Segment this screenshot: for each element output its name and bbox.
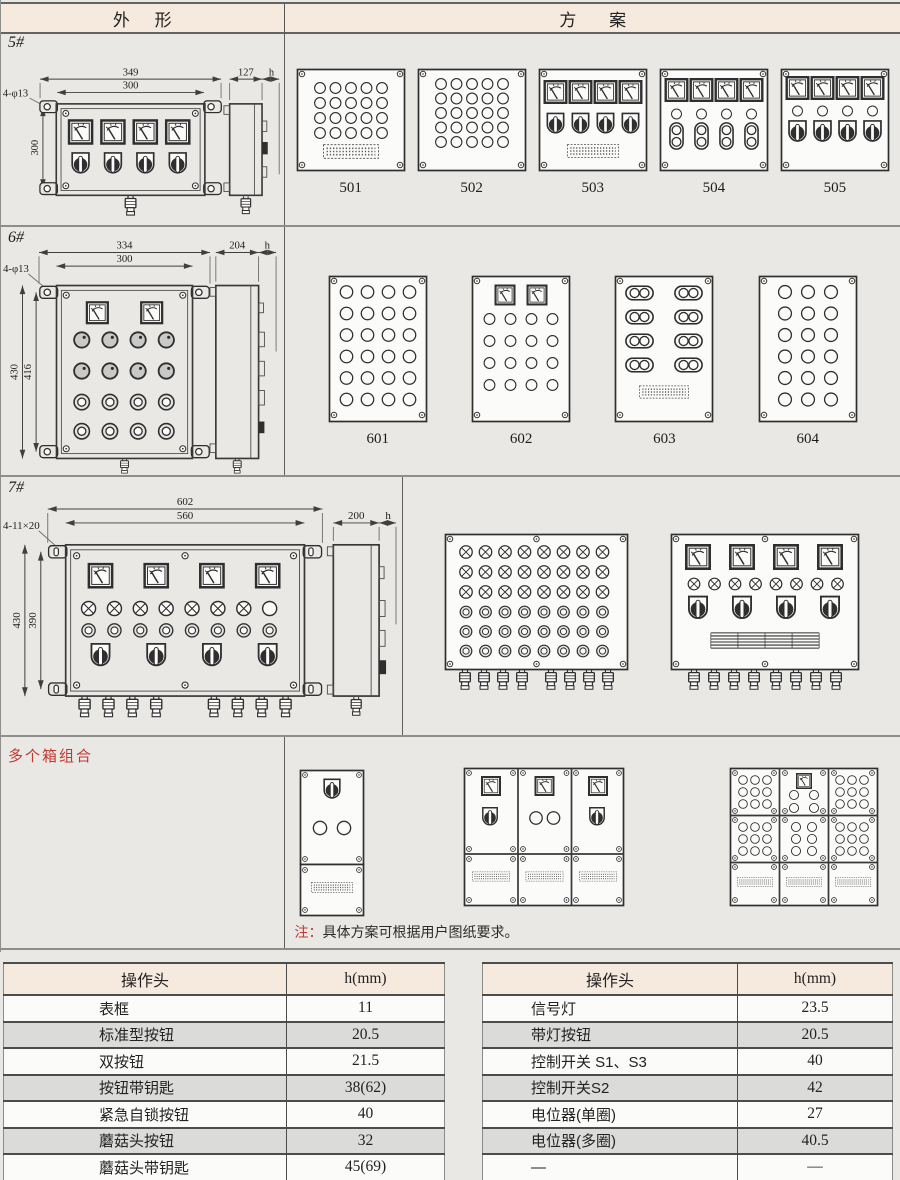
ring-button-grid bbox=[74, 394, 174, 438]
scheme-panel-505: 505 bbox=[780, 68, 890, 197]
lamp-row bbox=[82, 601, 251, 615]
table-row: 表框11 bbox=[4, 995, 445, 1022]
section-7: 7# 602 560 4-11×20 430 390 bbox=[1, 477, 900, 737]
outline-drawing-6: 334 300 4-φ13 430 416 bbox=[1, 235, 283, 474]
outline-drawing-7: 602 560 4-11×20 430 390 bbox=[1, 485, 399, 734]
table-row: 电位器(多圈)40.5 bbox=[483, 1128, 893, 1155]
col-operator-head: 操作头 bbox=[483, 963, 738, 995]
cable-gland-row bbox=[689, 670, 842, 689]
meter-row bbox=[69, 120, 189, 143]
meter-row bbox=[87, 302, 162, 323]
table-row: 按钮带钥匙38(62) bbox=[4, 1075, 445, 1102]
operator-head-table-left: 操作头h(mm) 表框11 标准型按钮20.5 双按钮21.5 按钮带钥匙38(… bbox=[3, 962, 445, 1180]
table-row: 电位器(单圈)27 bbox=[483, 1101, 893, 1128]
col-h-mm: h(mm) bbox=[287, 963, 445, 995]
table-row: 信号灯23.5 bbox=[483, 995, 893, 1022]
column-header-band: 外 形 方 案 bbox=[1, 2, 900, 34]
knob-button-grid bbox=[74, 332, 174, 378]
column-header-outline: 外 形 bbox=[1, 4, 285, 32]
dim-overall-width: 334 bbox=[117, 240, 134, 252]
scheme-panel-504: 504 bbox=[659, 68, 769, 197]
dim-overall-width: 349 bbox=[123, 67, 139, 78]
scheme-panel-503: 503 bbox=[538, 68, 648, 197]
scheme-panel-601: 601 bbox=[328, 275, 428, 448]
scheme-panel-502: 502 bbox=[417, 68, 527, 197]
table-header-row: 操作头h(mm) bbox=[4, 963, 445, 995]
dim-hole-height: 390 bbox=[27, 612, 39, 629]
meter-row bbox=[89, 564, 279, 587]
scheme-number: 505 bbox=[780, 180, 890, 197]
table-row: 双按钮21.5 bbox=[4, 1048, 445, 1075]
scheme-panel-7a bbox=[444, 533, 629, 706]
combo-two-box-stack bbox=[299, 769, 365, 919]
rotary-switch-row bbox=[91, 644, 276, 665]
cable-gland bbox=[125, 196, 136, 215]
scheme-panel-501: 501 bbox=[296, 68, 406, 197]
dim-head-height: h bbox=[265, 240, 271, 252]
table-row: 标准型按钮20.5 bbox=[4, 1022, 445, 1049]
table-row: 控制开关S242 bbox=[483, 1075, 893, 1102]
dim-mounting-holes: 4-φ13 bbox=[3, 88, 28, 99]
combo-section-label: 多个箱组合 bbox=[8, 745, 93, 766]
scheme-panel-604: 604 bbox=[758, 275, 858, 448]
content-frame: 外 形 方 案 5# 349 300 4-φ13 300 bbox=[0, 0, 900, 952]
section-5: 5# 349 300 4-φ13 300 bbox=[1, 32, 900, 227]
scheme-number: 501 bbox=[296, 180, 406, 197]
ring-button-row bbox=[82, 624, 276, 637]
table-row: 带灯按钮20.5 bbox=[483, 1022, 893, 1049]
cable-gland-row bbox=[79, 697, 291, 717]
dim-hole-height: 416 bbox=[22, 363, 34, 380]
dim-depth: 200 bbox=[348, 510, 365, 522]
cable-gland-row bbox=[460, 670, 614, 689]
outline-drawing-5: 349 300 4-φ13 300 bbox=[1, 41, 283, 222]
table-row: 控制开关 S1、S340 bbox=[483, 1048, 893, 1075]
meter-row bbox=[482, 777, 607, 795]
table-row: —— bbox=[483, 1154, 893, 1180]
side-view-box bbox=[230, 104, 262, 195]
operator-head-table-right: 操作头h(mm) 信号灯23.5 带灯按钮20.5 控制开关 S1、S340 控… bbox=[482, 962, 893, 1180]
note-body: 具体方案可根据用户图纸要求。 bbox=[323, 924, 519, 940]
vent bbox=[640, 386, 689, 398]
note: 注：具体方案可根据用户图纸要求。 bbox=[295, 922, 519, 942]
side-view-box bbox=[216, 286, 259, 459]
dim-head-height: h bbox=[385, 510, 391, 522]
vent bbox=[311, 882, 352, 892]
scheme-number: 604 bbox=[758, 431, 858, 448]
dim-box-width: 300 bbox=[123, 81, 139, 92]
scheme-number: 602 bbox=[471, 431, 571, 448]
column-header-scheme: 方 案 bbox=[285, 4, 900, 32]
combo-grid-of-boxes bbox=[729, 767, 879, 907]
dim-overall-height: 430 bbox=[11, 612, 23, 629]
scheme-number: 503 bbox=[538, 180, 648, 197]
dim-mounting-holes: 4-φ13 bbox=[3, 263, 29, 275]
dim-box-width: 300 bbox=[117, 253, 133, 265]
dim-box-height: 300 bbox=[30, 140, 41, 156]
col-operator-head: 操作头 bbox=[4, 963, 287, 995]
scheme-cell-5: 501 502 503 bbox=[285, 32, 900, 225]
front-view-box bbox=[56, 104, 205, 195]
cable-gland bbox=[121, 459, 129, 473]
dim-box-width: 560 bbox=[177, 510, 194, 522]
meter bbox=[796, 774, 810, 788]
dim-mounting-holes: 4-11×20 bbox=[3, 520, 40, 532]
outline-cell-7: 7# 602 560 4-11×20 430 390 bbox=[1, 477, 403, 735]
section-combination: 多个箱组合 bbox=[1, 737, 900, 950]
dim-depth: 127 bbox=[238, 67, 254, 78]
scheme-panel-603: 603 bbox=[614, 275, 714, 448]
combo-three-column bbox=[463, 767, 625, 907]
note-prefix: 注： bbox=[295, 924, 323, 940]
scheme-number: 502 bbox=[417, 180, 527, 197]
rotary-switch-row bbox=[72, 153, 186, 173]
scheme-cell-6: 601 602 603 bbox=[285, 227, 900, 475]
outline-cell-5: 5# 349 300 4-φ13 300 bbox=[1, 32, 285, 225]
table-header-row: 操作头h(mm) bbox=[483, 963, 893, 995]
dim-head-height: h bbox=[269, 67, 275, 78]
combo-label-cell: 多个箱组合 bbox=[1, 737, 285, 948]
vent bbox=[567, 145, 618, 158]
scheme-cell-7 bbox=[403, 477, 900, 735]
vent bbox=[323, 145, 378, 159]
catalog-page: 外 形 方 案 5# 349 300 4-φ13 300 bbox=[0, 0, 900, 1180]
table-row: 紧急自锁按钮40 bbox=[4, 1101, 445, 1128]
dim-depth: 204 bbox=[229, 240, 246, 252]
col-h-mm: h(mm) bbox=[738, 963, 893, 995]
operator-head-tables: 操作头h(mm) 表框11 标准型按钮20.5 双按钮21.5 按钮带钥匙38(… bbox=[3, 962, 893, 1180]
side-view-box bbox=[333, 545, 379, 696]
scheme-number: 603 bbox=[614, 431, 714, 448]
table-row: 蘑菇头按钮32 bbox=[4, 1128, 445, 1155]
outline-cell-6: 6# 334 300 4-φ13 430 416 bbox=[1, 227, 285, 475]
dim-overall-height: 430 bbox=[9, 364, 21, 380]
combo-drawing-cell: 注：具体方案可根据用户图纸要求。 bbox=[285, 737, 900, 948]
scheme-panel-602: 602 bbox=[471, 275, 571, 448]
dim-overall-width: 602 bbox=[177, 496, 193, 508]
scheme-number: 504 bbox=[659, 180, 769, 197]
scheme-panel-7b bbox=[670, 533, 860, 706]
rotary-switch bbox=[324, 779, 340, 798]
section-6: 6# 334 300 4-φ13 430 416 bbox=[1, 227, 900, 477]
scheme-number: 601 bbox=[328, 431, 428, 448]
table-row: 蘑菇头带钥匙45(69) bbox=[4, 1154, 445, 1180]
